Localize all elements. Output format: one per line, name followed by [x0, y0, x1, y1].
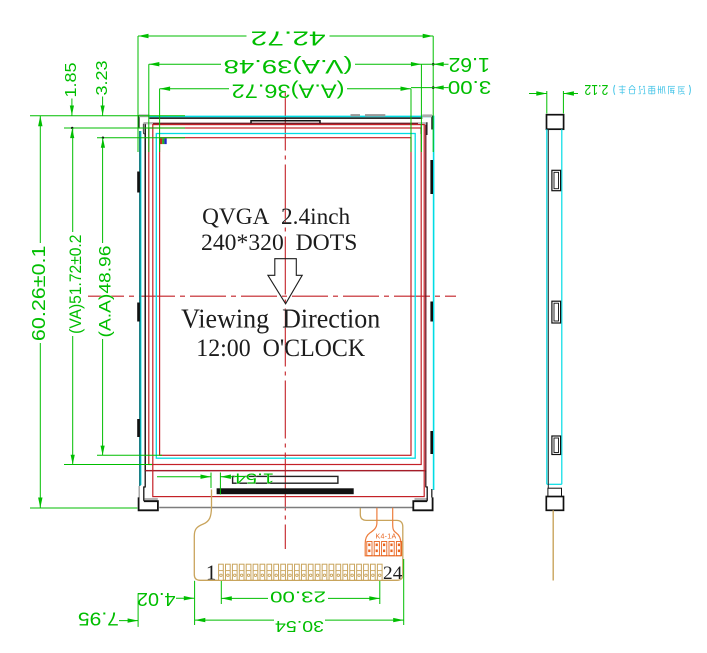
svg-text:42.72: 42.72 [251, 27, 326, 49]
svg-text:24: 24 [383, 563, 403, 584]
svg-text:1: 1 [206, 561, 217, 585]
svg-text:2.12: 2.12 [584, 81, 608, 98]
svg-text:60.26±0.1: 60.26±0.1 [29, 245, 49, 341]
svg-text:K4-1A: K4-1A [376, 533, 397, 540]
svg-text:3.00: 3.00 [448, 77, 491, 97]
svg-text:23.00: 23.00 [270, 587, 326, 604]
svg-text:(VA)51.72±0.2: (VA)51.72±0.2 [66, 235, 85, 334]
svg-text:QVGA 2.4inch: QVGA 2.4inch [202, 204, 350, 229]
svg-text:1.62: 1.62 [449, 53, 490, 75]
svg-text:7.95: 7.95 [78, 609, 119, 630]
svg-text:12:00 O'CLOCK: 12:00 O'CLOCK [196, 335, 365, 362]
svg-text:30.54: 30.54 [275, 617, 324, 634]
svg-text:(V.A)39.48: (V.A)39.48 [224, 55, 353, 76]
svg-text:4.02: 4.02 [137, 589, 176, 610]
svg-text:(A.A)36.72: (A.A)36.72 [232, 79, 345, 100]
svg-text:1.54: 1.54 [234, 470, 274, 487]
svg-text:(A.A)48.96: (A.A)48.96 [95, 246, 114, 338]
svg-text:3.23: 3.23 [94, 60, 111, 95]
svg-text:Viewing Direction: Viewing Direction [181, 303, 381, 333]
svg-text:240*320 DOTS: 240*320 DOTS [201, 230, 357, 256]
svg-text:1.85: 1.85 [63, 62, 80, 97]
